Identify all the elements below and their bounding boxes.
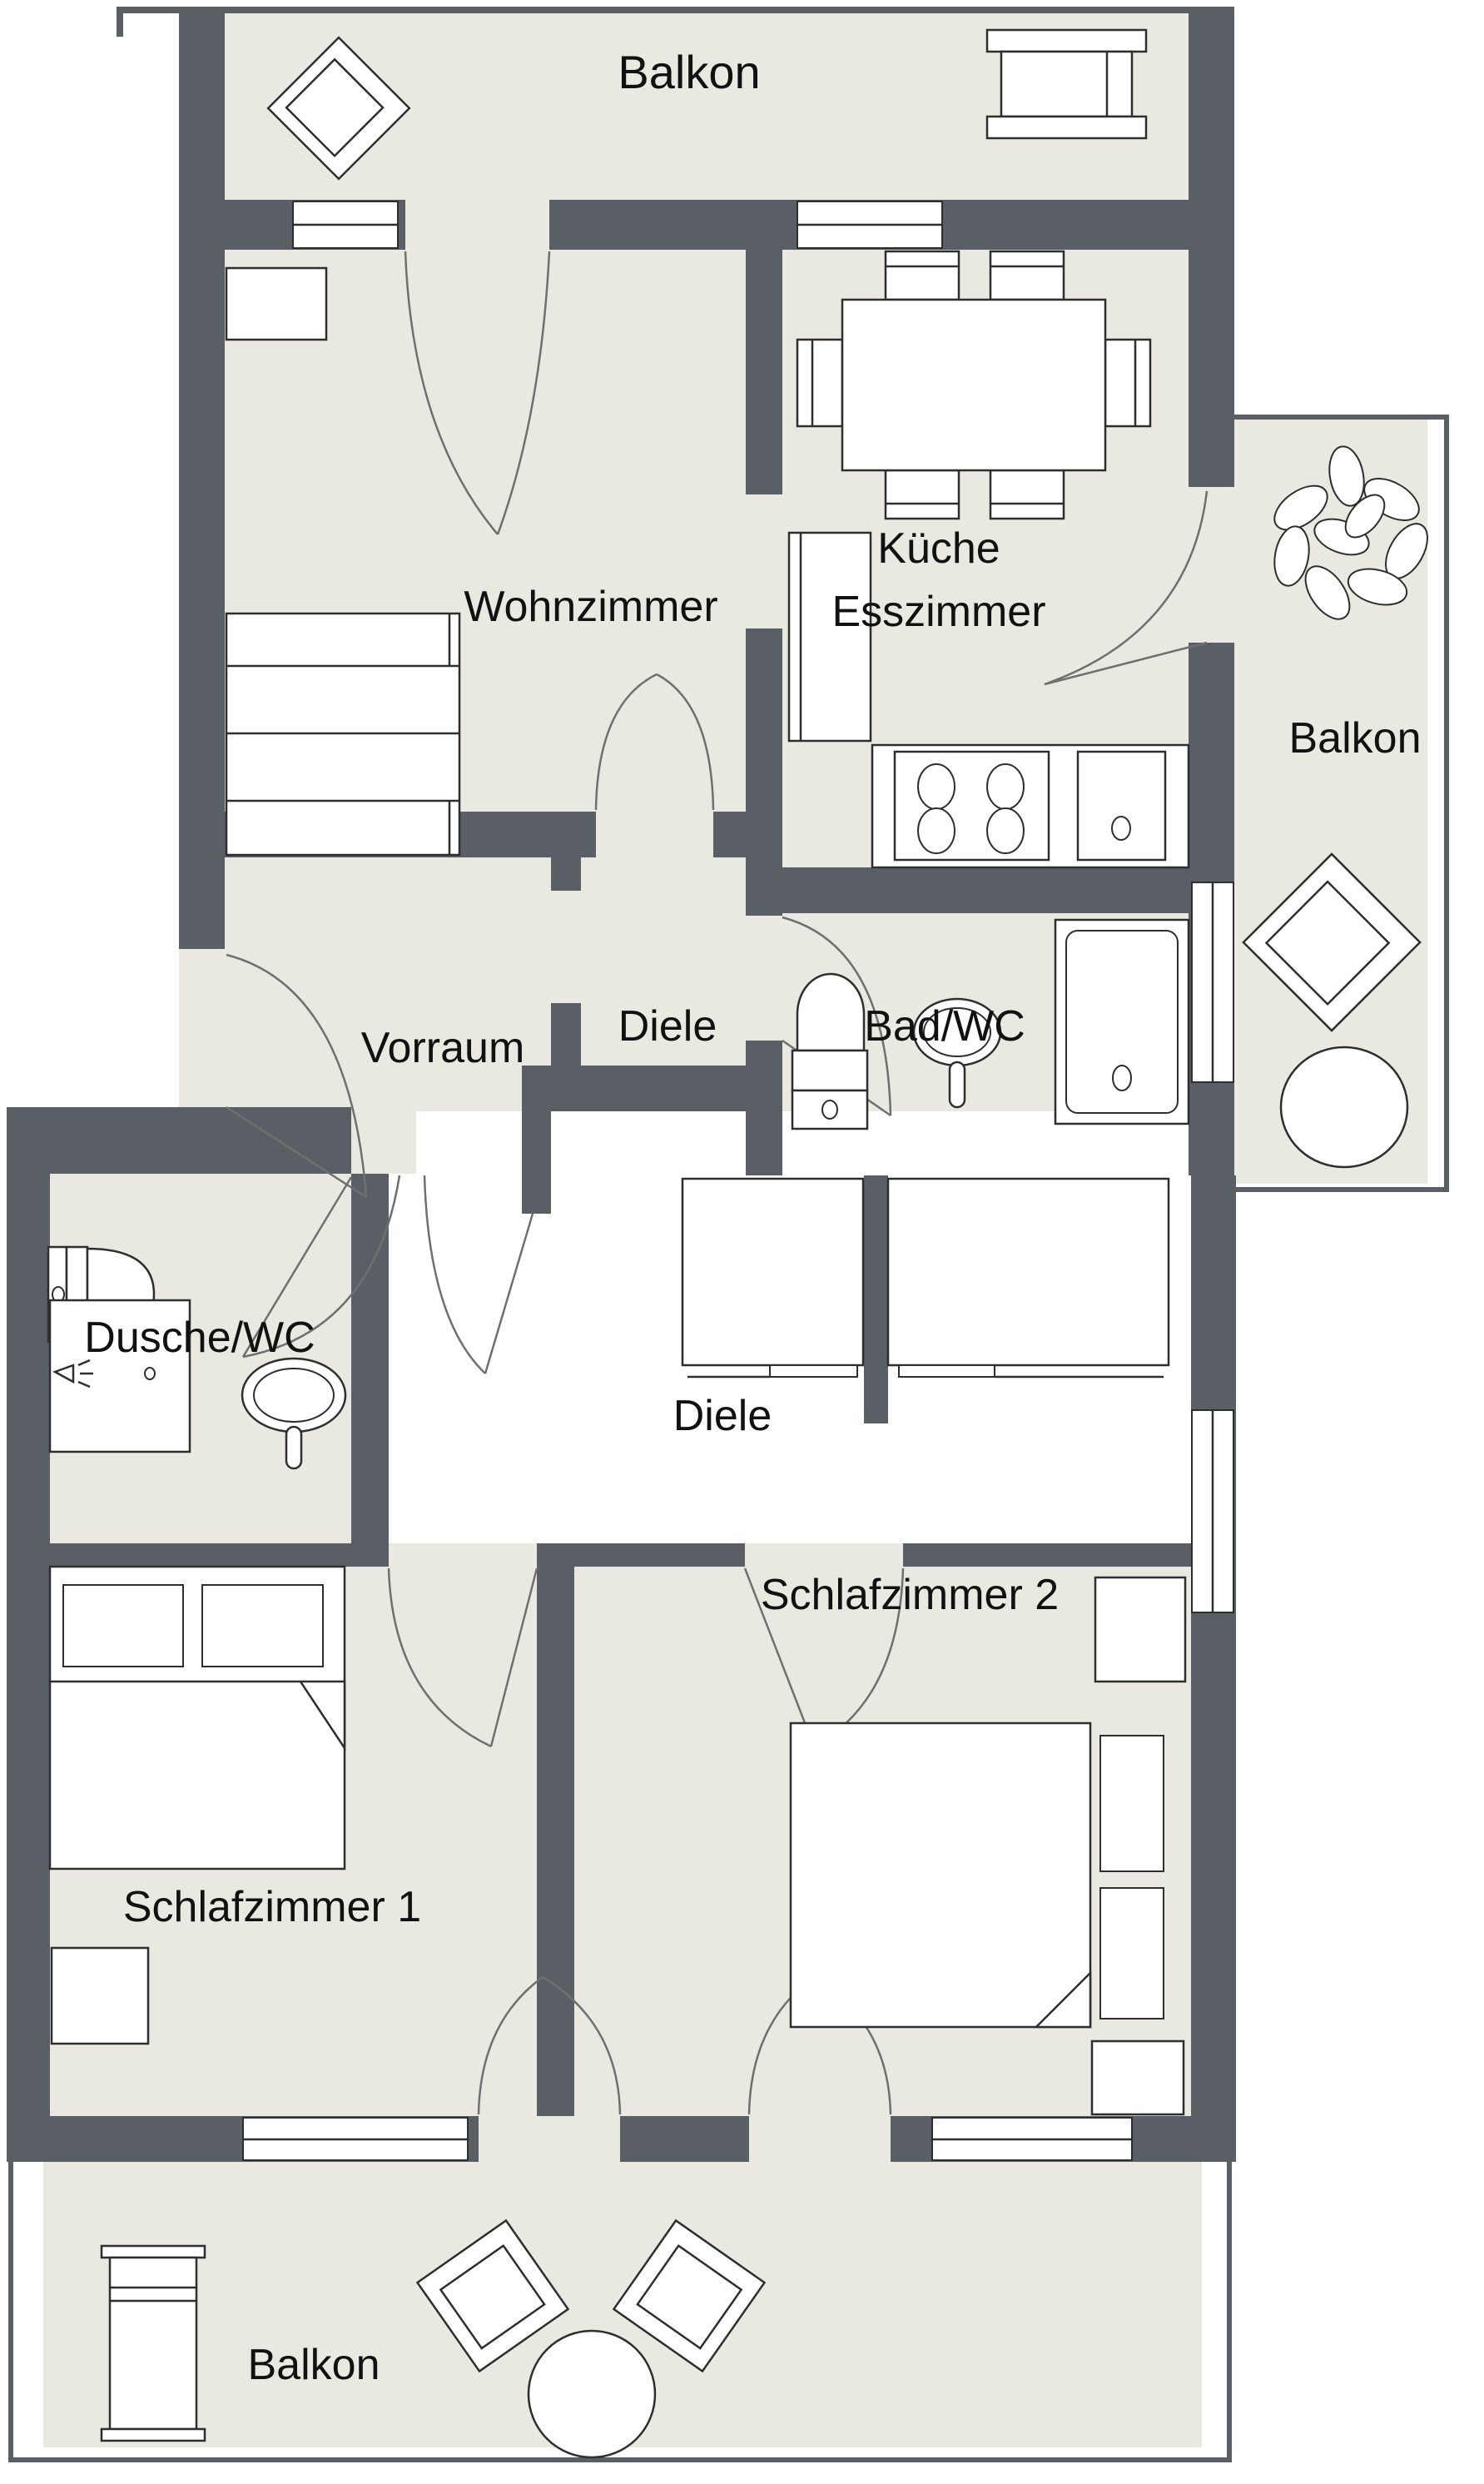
- chair-icon: [990, 470, 1064, 519]
- kitchen-counter-icon: [872, 745, 1189, 867]
- window-icon: [1192, 1410, 1233, 1612]
- room-label-wohnzimmer: Wohnzimmer: [464, 583, 717, 631]
- sun-lounger-icon: [102, 2246, 205, 2441]
- wall-bedroom-divider: [537, 1567, 574, 2116]
- side-table-icon: [987, 30, 1146, 138]
- chair-icon: [886, 251, 959, 300]
- nightstand-icon: [1092, 2041, 1184, 2114]
- double-bed-icon: [50, 1567, 345, 1869]
- room-label-schlafzimmer-1: Schlafzimmer 1: [123, 1883, 421, 1931]
- room-label-vorraum: Vorraum: [361, 1024, 525, 1072]
- room-label-balkon-top: Balkon: [618, 46, 760, 98]
- round-table-icon: [529, 2331, 655, 2457]
- pillow-icon: [1100, 1888, 1164, 2019]
- wall-wardrobe-spur: [864, 1175, 888, 1423]
- window-icon: [797, 201, 942, 248]
- room-label-balkon-bottom: Balkon: [248, 2341, 380, 2389]
- stove-icon: [895, 752, 1049, 860]
- room-label-diele-upper: Diele: [618, 1002, 717, 1051]
- wall-cap: [522, 1066, 551, 1214]
- chair-icon: [797, 340, 842, 426]
- wall-kitchen-bottom: [746, 867, 1234, 913]
- floor-plan: Balkon Wohnzimmer Küche Esszimmer Balkon…: [0, 0, 1484, 2484]
- window-icon: [1192, 882, 1233, 1082]
- chair-icon: [1105, 340, 1150, 426]
- fridge-cabinet-icon: [789, 533, 871, 741]
- pillow-icon: [202, 1585, 323, 1667]
- wall-bedroom1-top: [7, 1543, 389, 1567]
- kitchen-sink-icon: [1078, 752, 1165, 860]
- room-label-balkon-right: Balkon: [1289, 714, 1422, 763]
- nightstand-icon: [1095, 1577, 1185, 1682]
- room-label-dusche-wc: Dusche/WC: [84, 1314, 315, 1362]
- wall-bedroom2-top: [903, 1543, 1191, 1567]
- room-label-bad-wc: Bad/WC: [864, 1002, 1025, 1051]
- window-icon: [932, 2118, 1132, 2160]
- wall-shower-right: [351, 1174, 389, 1543]
- room-label-schlafzimmer-2: Schlafzimmer 2: [761, 1571, 1059, 1619]
- chair-icon: [886, 470, 959, 519]
- chair-icon: [990, 251, 1064, 300]
- sofa-icon: [226, 614, 459, 855]
- round-table-icon: [1281, 1047, 1407, 1167]
- room-label-diele-lower: Diele: [673, 1392, 772, 1440]
- wall-right-lower: [1191, 1175, 1236, 2162]
- wall-diele-upper-bottom: [551, 1066, 782, 1111]
- pillow-icon: [1100, 1736, 1164, 1871]
- room-label-kueche: Küche: [877, 524, 1000, 573]
- wardrobe-icon: [888, 1179, 1169, 1377]
- bathtub-icon: [1055, 920, 1189, 1124]
- window-icon: [293, 201, 398, 248]
- floor-plan-drawing: Balkon Wohnzimmer Küche Esszimmer Balkon…: [0, 0, 1484, 2484]
- toilet-icon: [792, 974, 867, 1129]
- window-icon: [243, 2118, 468, 2160]
- wall-left-lower: [7, 1107, 50, 2162]
- pillow-icon: [63, 1585, 183, 1667]
- wardrobe-icon: [682, 1179, 863, 1377]
- cabinet-icon: [226, 268, 326, 340]
- wall-hall-bottom-mid: [537, 1543, 745, 1567]
- nightstand-icon: [52, 1948, 148, 2044]
- room-label-esszimmer: Esszimmer: [831, 588, 1045, 636]
